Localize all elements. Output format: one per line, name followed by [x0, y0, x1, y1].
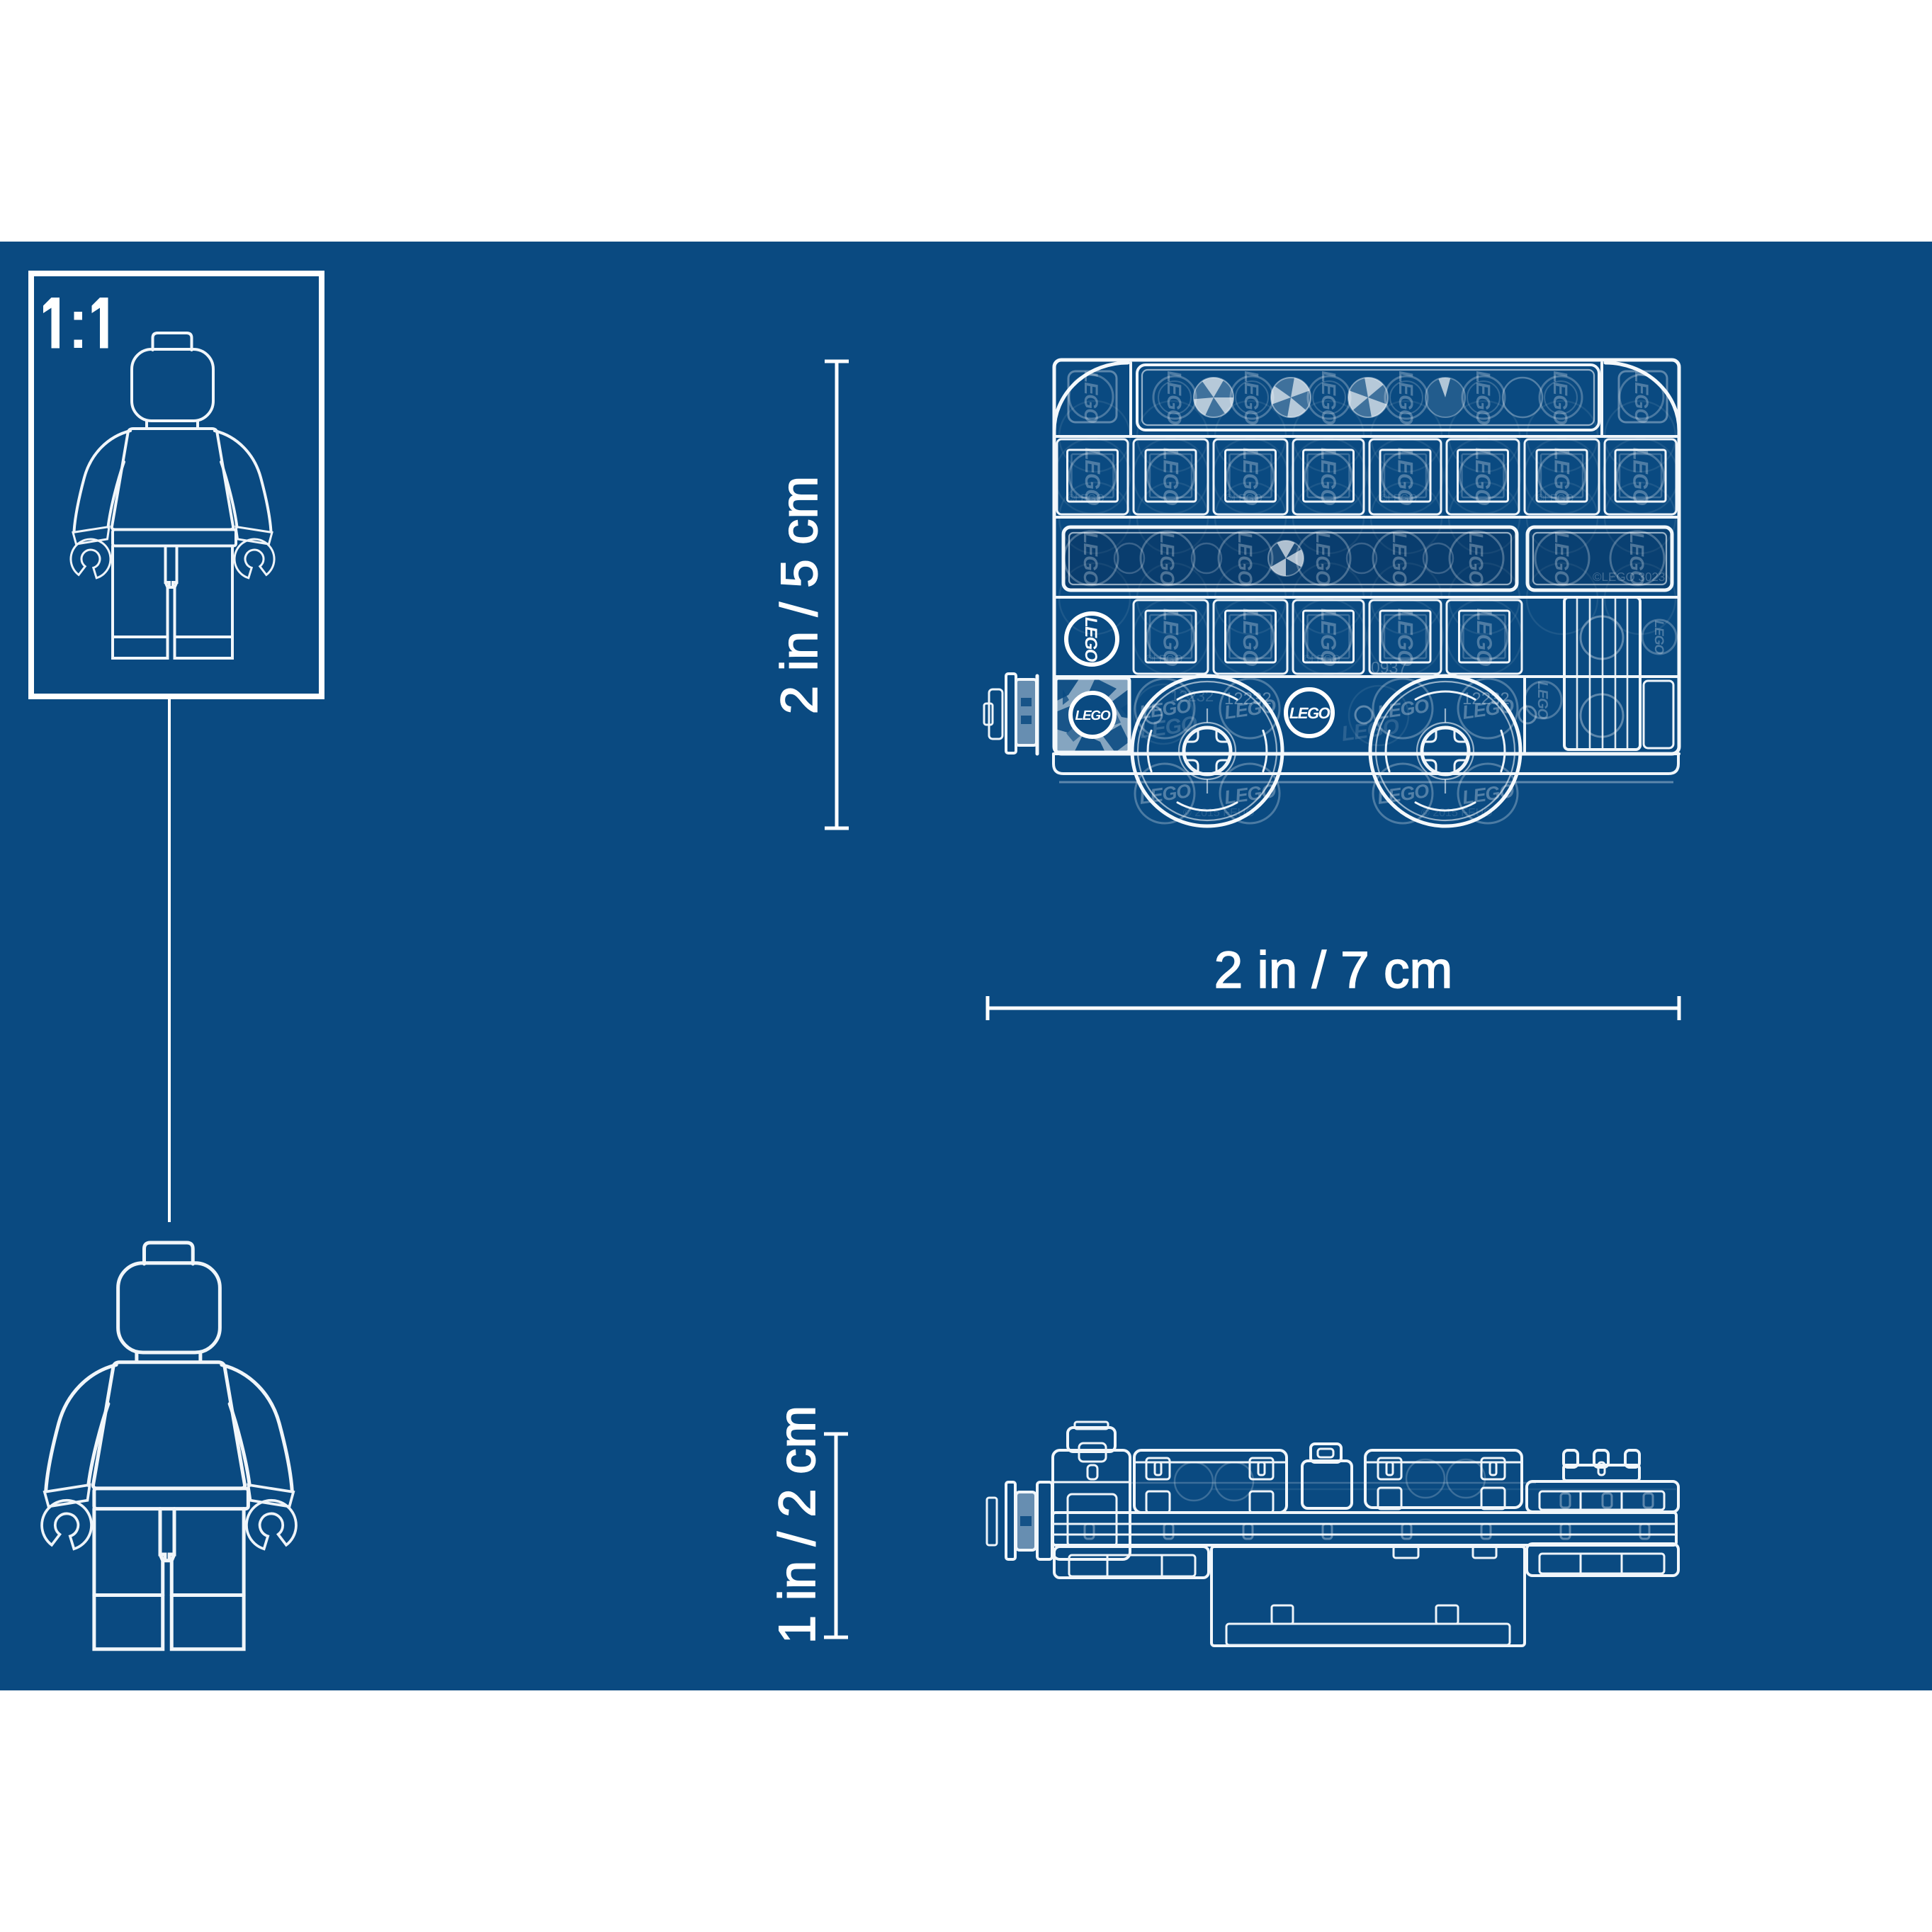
svg-text:LEGO: LEGO: [1289, 704, 1331, 722]
svg-text:LEGO: LEGO: [1238, 608, 1262, 666]
svg-text:LEGO: LEGO: [1652, 620, 1666, 654]
svg-text:LEGO: LEGO: [1472, 371, 1494, 425]
svg-text:12232: 12232: [1224, 689, 1272, 708]
svg-text:2 in / 7 cm: 2 in / 7 cm: [1214, 942, 1453, 999]
svg-text:LEGO: LEGO: [1312, 531, 1334, 586]
svg-text:2 in / 5 cm: 2 in / 5 cm: [771, 476, 828, 715]
svg-text:0937: 0937: [1371, 658, 1407, 677]
svg-text:LEGO: LEGO: [1316, 447, 1340, 505]
svg-text:LEGO: LEGO: [1081, 617, 1100, 662]
svg-text:©LEGO 3023: ©LEGO 3023: [1593, 570, 1665, 584]
svg-text:LEGO: LEGO: [1551, 531, 1573, 586]
svg-text:LEGO: LEGO: [1080, 371, 1102, 424]
svg-text:LEGO: LEGO: [1394, 608, 1417, 666]
svg-text:1 in / 2 cm: 1 in / 2 cm: [769, 1406, 826, 1644]
svg-text:©LEGO: ©LEGO: [1225, 492, 1262, 504]
svg-text:LEGO: LEGO: [1472, 608, 1496, 666]
svg-text:©LEGO: ©LEGO: [1146, 653, 1183, 665]
svg-text:LEGO: LEGO: [1629, 447, 1652, 505]
svg-text:LEGO: LEGO: [1163, 371, 1185, 425]
svg-text:LEGO: LEGO: [1318, 371, 1340, 425]
svg-text:LEGO: LEGO: [1465, 531, 1487, 586]
svg-text:LEGO: LEGO: [1549, 371, 1571, 425]
svg-text:©LEGO: ©LEGO: [1067, 492, 1105, 504]
svg-text:LEGO: LEGO: [1234, 531, 1256, 586]
svg-text:LEGO: LEGO: [1389, 531, 1411, 586]
svg-text:12232: 12232: [1462, 689, 1510, 708]
svg-text:©LEGO: ©LEGO: [1303, 653, 1340, 665]
svg-text:LEGO: LEGO: [1156, 531, 1178, 586]
svg-text:LEGO: LEGO: [1395, 371, 1417, 425]
svg-text:LEGO: LEGO: [1075, 708, 1110, 723]
svg-text:LEGO: LEGO: [1159, 447, 1182, 505]
svg-text:©LEGO: ©LEGO: [1380, 492, 1418, 504]
svg-text:LEGO: LEGO: [1080, 531, 1102, 586]
svg-text:©LEGO: ©LEGO: [1537, 492, 1574, 504]
svg-text:© 2015 FEUO: © 2015 FEUO: [1421, 807, 1493, 819]
svg-text:LEGO: LEGO: [1471, 447, 1494, 505]
svg-text:LEGO: LEGO: [1241, 371, 1262, 425]
svg-text:LEGO: LEGO: [1631, 371, 1652, 424]
svg-text:© 2015 FEUO: © 2015 FEUO: [1183, 807, 1255, 819]
